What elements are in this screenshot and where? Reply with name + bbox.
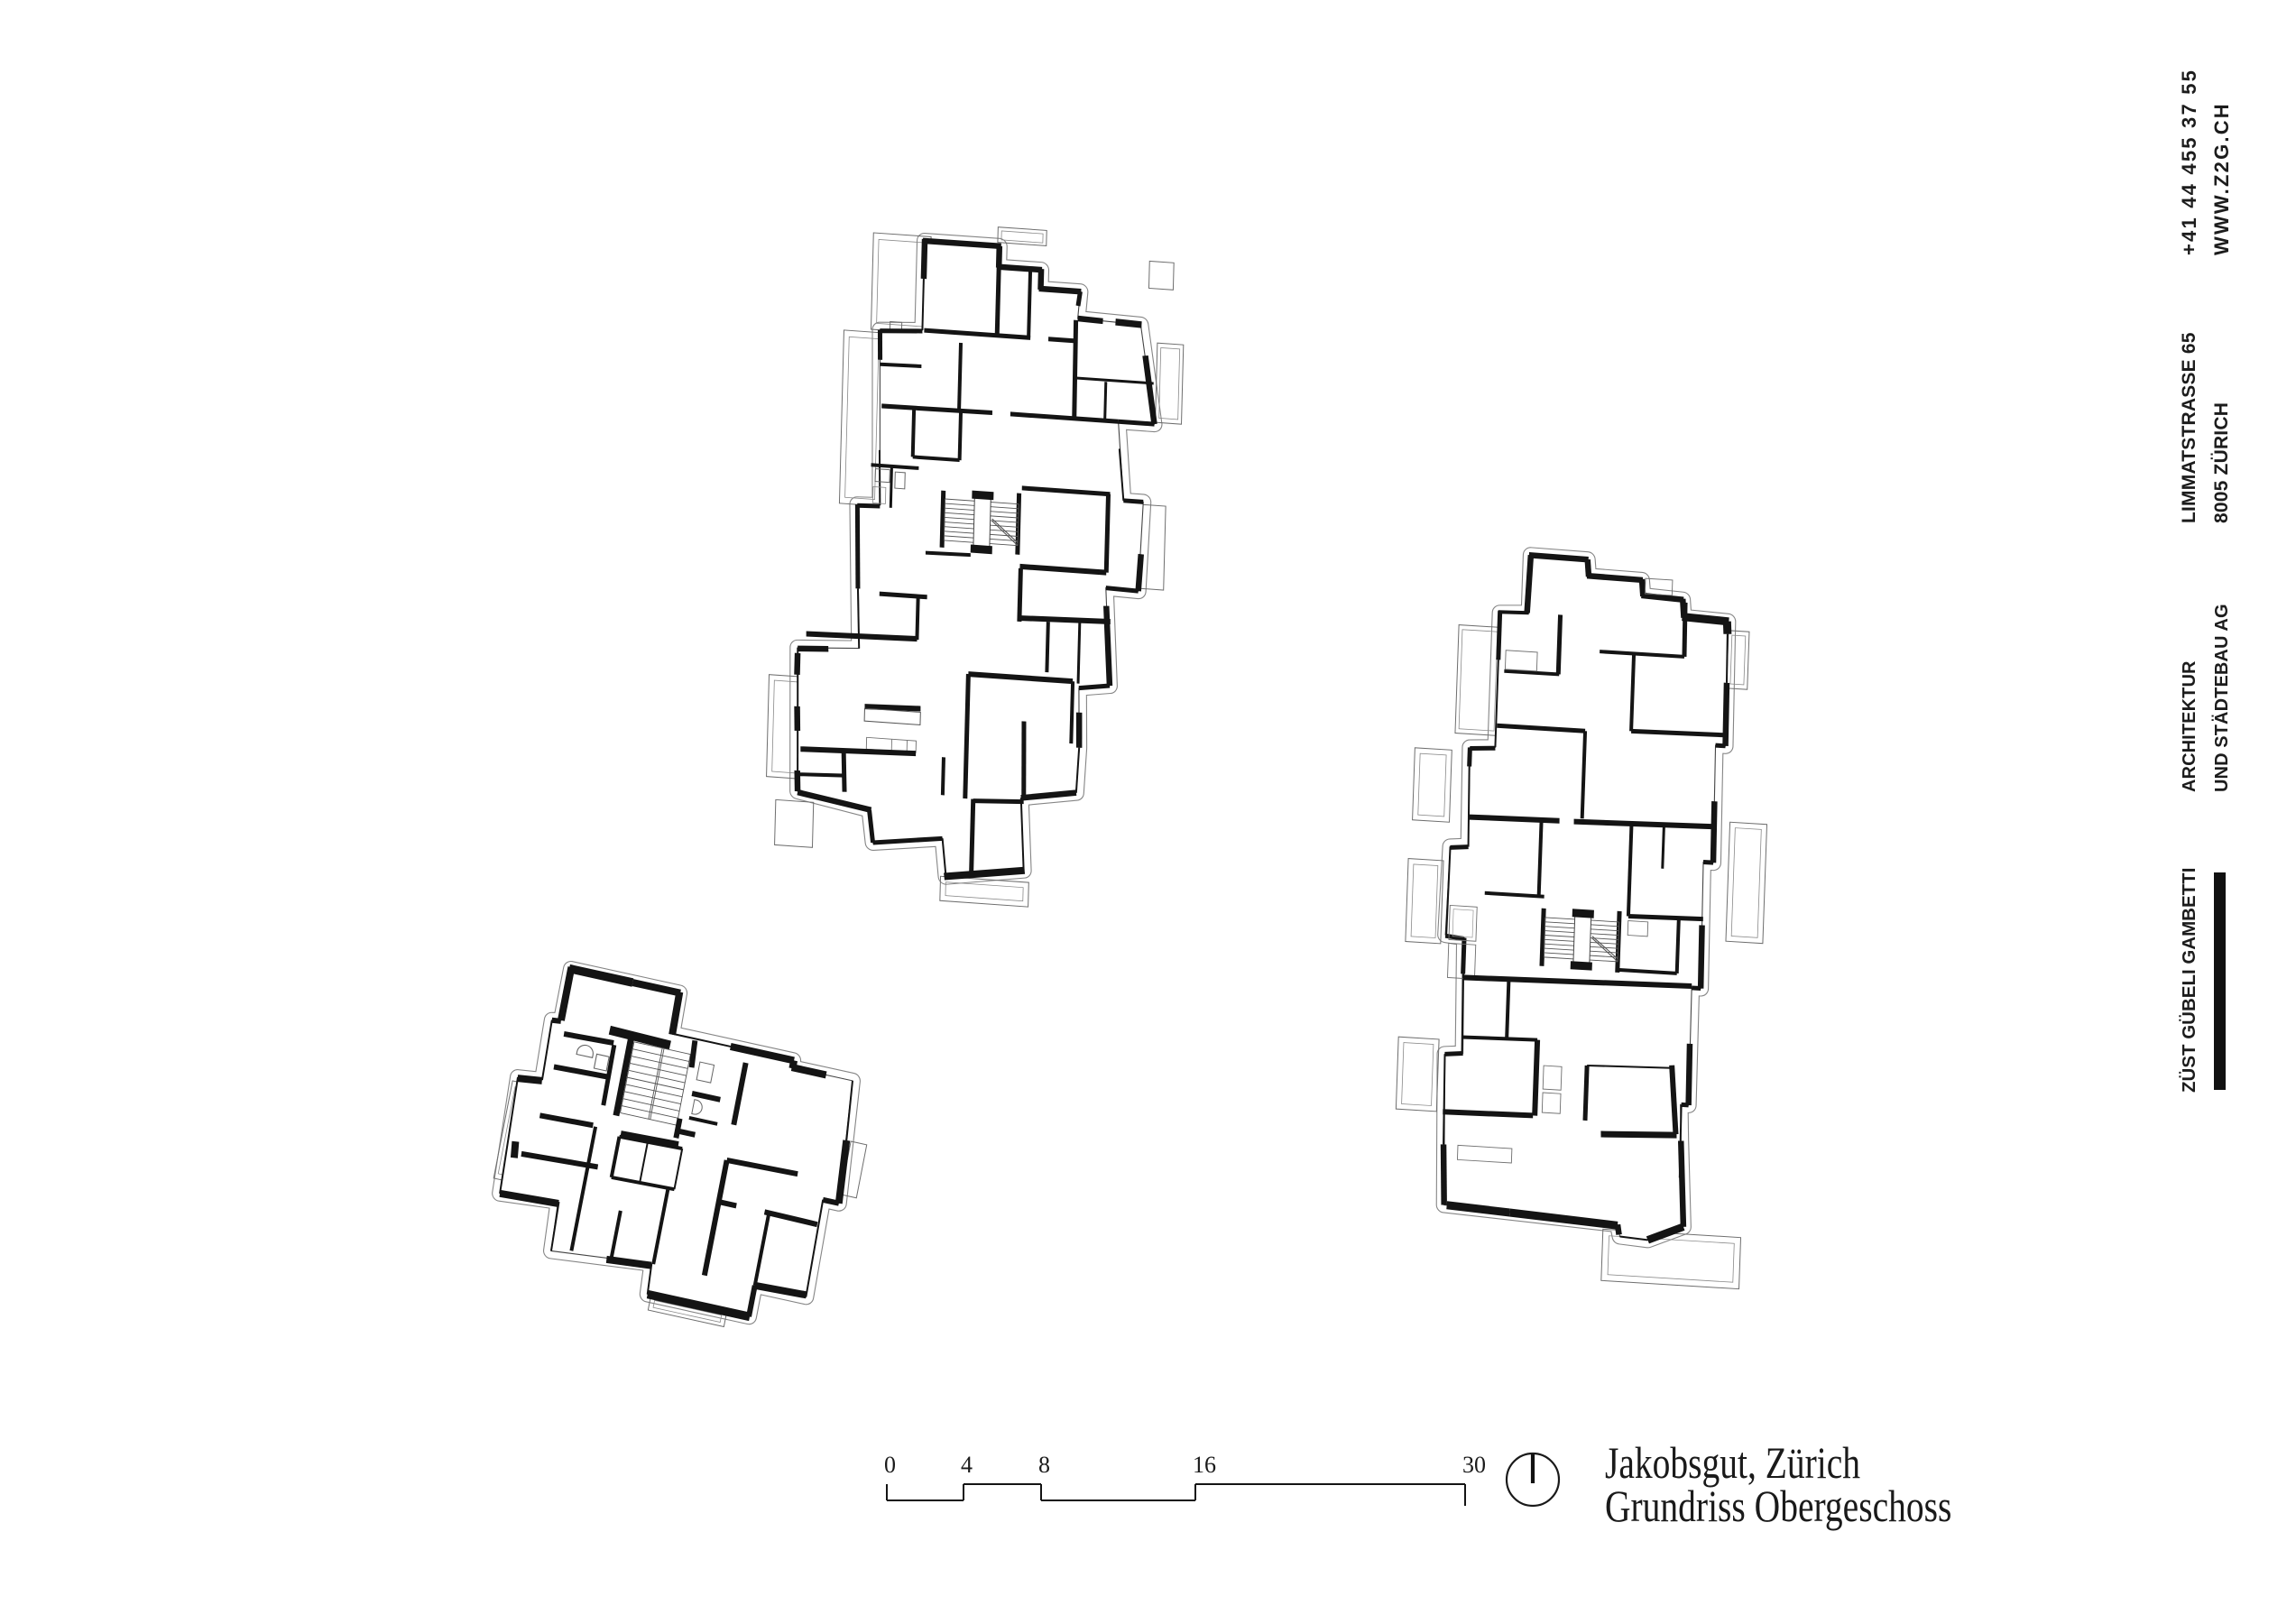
- svg-text:30: 30: [1462, 1452, 1486, 1478]
- svg-text:4: 4: [961, 1452, 973, 1478]
- svg-text:16: 16: [1193, 1452, 1216, 1478]
- svg-text:8: 8: [1038, 1452, 1050, 1478]
- svg-text:0: 0: [884, 1452, 896, 1478]
